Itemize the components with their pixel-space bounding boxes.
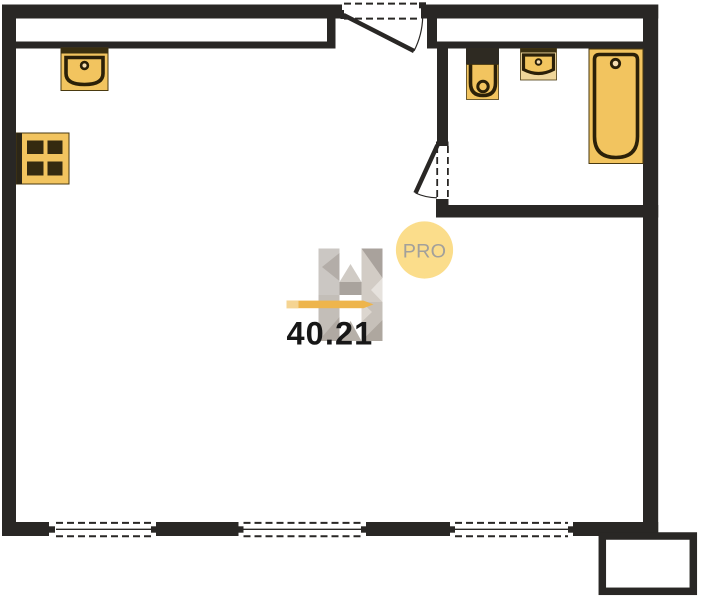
svg-text:PRO: PRO xyxy=(403,241,446,263)
svg-text:40.21: 40.21 xyxy=(287,316,374,352)
